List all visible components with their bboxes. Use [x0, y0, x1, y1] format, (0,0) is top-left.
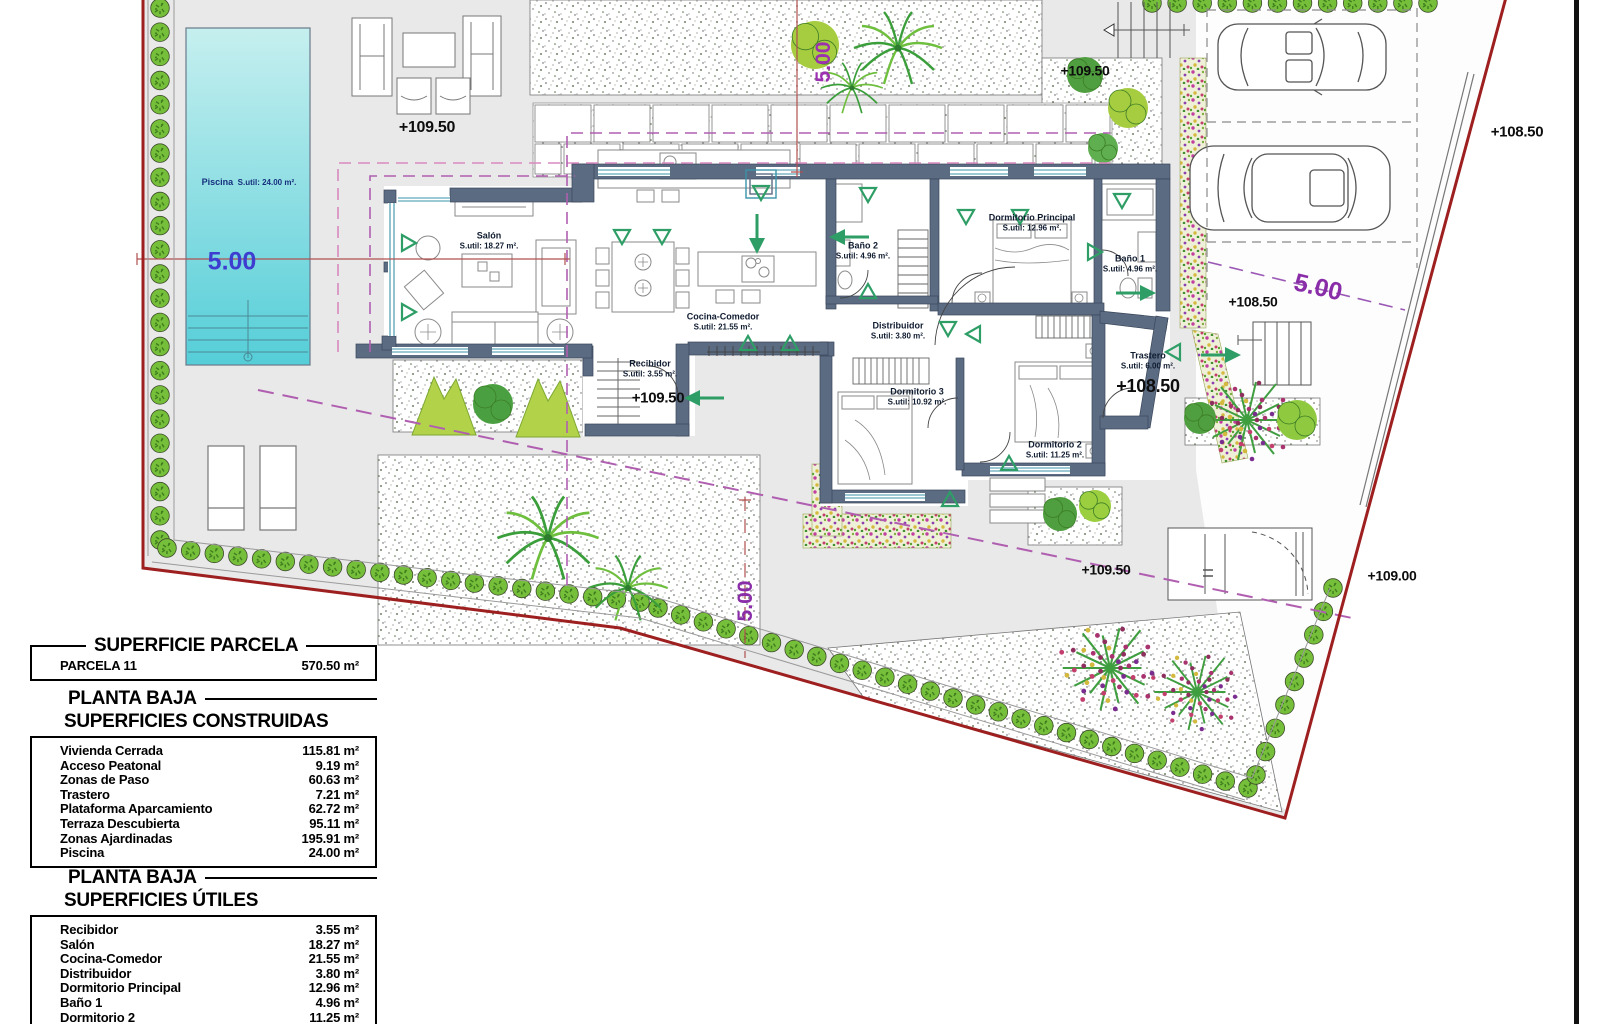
table-row: Plataforma Aparcamiento62.72 m²: [60, 802, 359, 817]
hedge-tree-icon: [323, 558, 342, 577]
table-superficies-construidas: PLANTA BAJA SUPERFICIES CONSTRUIDAS Vivi…: [30, 688, 377, 868]
hedge-tree-icon: [1125, 744, 1144, 763]
hedge-tree-icon: [151, 168, 170, 187]
table-subtitle: PLANTA BAJA: [30, 867, 377, 889]
bush-icon: [1277, 400, 1317, 440]
bush-icon: [1088, 133, 1118, 163]
hedge-tree-icon: [151, 386, 170, 405]
hedge-tree-icon: [151, 0, 170, 17]
table-row: Cocina-Comedor21.55 m²: [60, 952, 359, 967]
hedge-tree-icon: [898, 675, 917, 694]
bush-icon: [1079, 490, 1111, 522]
bush-icon: [473, 384, 513, 424]
table-row: Recibidor3.55 m²: [60, 923, 359, 938]
bush-icon: [791, 21, 839, 69]
hedge-tree-icon: [876, 668, 895, 687]
hedge-tree-icon: [181, 541, 200, 560]
hedge-tree-icon: [944, 689, 963, 708]
table-row: Terraza Descubierta95.11 m²: [60, 817, 359, 832]
hedge-tree-icon: [151, 192, 170, 211]
table-subtitle: PLANTA BAJA: [30, 688, 377, 710]
table-row: Zonas de Paso60.63 m²: [60, 773, 359, 788]
hedge-tree-icon: [158, 539, 177, 558]
entrance-gate: [1168, 528, 1312, 600]
table-row: Acceso Peatonal9.19 m²: [60, 759, 359, 774]
bush-icon: [1043, 497, 1077, 531]
hedge-tree-icon: [853, 661, 872, 680]
hedge-tree-icon: [418, 568, 437, 587]
pool: [186, 28, 310, 365]
hedge-tree-icon: [762, 633, 781, 652]
hedge-tree-icon: [300, 555, 319, 574]
table-row: Piscina24.00 m²: [60, 846, 359, 861]
hedge-tree-icon: [785, 640, 804, 659]
hedge-tree-icon: [276, 552, 295, 571]
hedge-tree-icon: [151, 241, 170, 260]
hedge-tree-icon: [205, 544, 224, 563]
hedge-tree-icon: [489, 577, 508, 596]
hedge-tree-icon: [1080, 730, 1099, 749]
hedge-tree-icon: [465, 574, 484, 593]
hedge-tree-icon: [151, 482, 170, 501]
hedge-tree-icon: [513, 579, 532, 598]
hedge-tree-icon: [151, 216, 170, 235]
hedge-tree-icon: [1171, 758, 1190, 777]
hedge-tree-icon: [151, 434, 170, 453]
hedge-tree-icon: [371, 563, 390, 582]
table-row: Dormitorio 211.25 m²: [60, 1011, 359, 1024]
site-plan-page: Piscina S.util: 24.00 m². SalónS.util: 1…: [0, 0, 1600, 1024]
table-row: Distribuidor3.80 m²: [60, 967, 359, 982]
hedge-tree-icon: [649, 599, 668, 618]
hedge-tree-icon: [151, 265, 170, 284]
hedge-tree-icon: [989, 703, 1008, 722]
hedge-tree-icon: [808, 647, 827, 666]
hedge-tree-icon: [966, 696, 985, 715]
hedge-tree-icon: [151, 71, 170, 90]
table-row: Dormitorio Principal12.96 m²: [60, 981, 359, 996]
hedge-tree-icon: [717, 620, 736, 639]
table-row: Baño 14.96 m²: [60, 996, 359, 1011]
hedge-tree-icon: [151, 361, 170, 380]
hedge-tree-icon: [536, 582, 555, 601]
hedge-tree-icon: [151, 23, 170, 42]
bush-icon: [1067, 57, 1103, 93]
hedge-tree-icon: [151, 337, 170, 356]
hedge-tree-icon: [151, 313, 170, 332]
hedge-tree-icon: [151, 95, 170, 114]
hedge-tree-icon: [252, 550, 271, 569]
table-superficies-utiles: PLANTA BAJA SUPERFICIES ÚTILES Recibidor…: [30, 867, 377, 1024]
table-row: Vivienda Cerrada115.81 m²: [60, 744, 359, 759]
table-superficie-parcela: SUPERFICIE PARCELA PARCELA 11570.50 m²: [30, 645, 377, 681]
hedge-tree-icon: [1193, 765, 1212, 784]
hedge-tree-icon: [1035, 716, 1054, 735]
hedge-tree-icon: [151, 458, 170, 477]
hedge-tree-icon: [694, 613, 713, 632]
hedge-tree-icon: [1057, 723, 1076, 742]
hedge-tree-icon: [442, 571, 461, 590]
hedge-tree-icon: [1103, 737, 1122, 756]
sheet-frame: [1574, 0, 1579, 1024]
hedge-tree-icon: [830, 654, 849, 673]
bush-icon: [1184, 402, 1216, 434]
hedge-tree-icon: [1324, 579, 1343, 598]
hedge-tree-icon: [151, 507, 170, 526]
hedge-tree-icon: [1216, 772, 1235, 791]
car-1: [1218, 19, 1386, 95]
table-title: SUPERFICIE PARCELA: [86, 635, 306, 657]
hedge-tree-icon: [151, 410, 170, 429]
hedge-tree-icon: [151, 289, 170, 308]
hedge-tree-icon: [1012, 710, 1031, 729]
table-row: Trastero7.21 m²: [60, 788, 359, 803]
hedge-tree-icon: [671, 606, 690, 625]
hedge-tree-icon: [151, 144, 170, 163]
table-title: SUPERFICIES ÚTILES: [30, 890, 377, 912]
car-2: [1190, 146, 1390, 230]
hedge-tree-icon: [229, 547, 248, 566]
hedge-tree-icon: [347, 560, 366, 579]
hedge-tree-icon: [560, 585, 579, 604]
table-row: Zonas Ajardinadas195.91 m²: [60, 832, 359, 847]
table-row: Salón18.27 m²: [60, 938, 359, 953]
hedge-tree-icon: [740, 626, 759, 645]
hedge-tree-icon: [151, 47, 170, 66]
bush-icon: [1108, 88, 1148, 128]
hedge-tree-icon: [921, 682, 940, 701]
hedge-tree-icon: [394, 566, 413, 585]
hedge-tree-icon: [151, 120, 170, 139]
table-row: PARCELA 11570.50 m²: [60, 659, 359, 674]
table-title: SUPERFICIES CONSTRUIDAS: [30, 711, 377, 733]
hedge-tree-icon: [1148, 751, 1167, 770]
